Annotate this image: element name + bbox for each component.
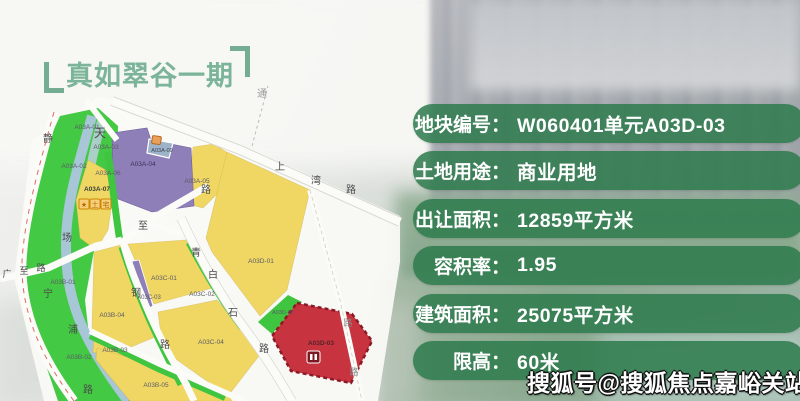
- map-label: 土: [92, 200, 99, 209]
- map-label: 路: [343, 317, 352, 328]
- map-label: 湾: [311, 174, 321, 187]
- map-label: A03C-02: [189, 291, 215, 298]
- map-label: 至: [138, 220, 148, 232]
- map-label: A03D-02: [272, 310, 294, 316]
- map-label: 路: [346, 183, 356, 196]
- page-title-block: 真如翠谷一期: [44, 44, 264, 96]
- map-label: 路: [349, 366, 358, 377]
- map-label: A03D-03: [308, 340, 334, 347]
- map-label: 路: [160, 338, 170, 351]
- map-label: A03C-01: [151, 275, 177, 282]
- facility-badge: ★土宅: [79, 199, 111, 209]
- map-label: A03A-06: [95, 170, 121, 177]
- map-label: 静: [43, 132, 53, 145]
- map-label: A03B-02: [66, 354, 92, 361]
- map-label: A03A-04: [130, 161, 156, 168]
- map-label: 白: [208, 268, 218, 281]
- watermark: 搜狐号@搜狐焦点嘉峪关站: [527, 364, 800, 398]
- page-title: 真如翠谷一期: [66, 54, 234, 93]
- map-label: A03C-04: [198, 339, 224, 346]
- map-label: A03B-03: [102, 347, 128, 354]
- map-label: 至: [19, 266, 28, 276]
- map-label: A03A-02: [61, 163, 87, 170]
- map-label: 宁: [43, 287, 53, 300]
- map-label: A03B-01: [50, 279, 76, 286]
- parcel-marker-icon: [151, 135, 161, 144]
- map-label: 宅: [103, 200, 110, 209]
- map-label: 广: [2, 268, 11, 279]
- map-label: A03B-04: [99, 312, 125, 319]
- map-label: A03B-05: [143, 382, 169, 389]
- map-label: 路: [83, 383, 93, 396]
- land-parcel-map: ★土宅 通静宁路广至路场浦天至钢路路青白石路上湾路路路 A03A-01A03A-…: [0, 84, 410, 401]
- background-sky: [470, 0, 800, 90]
- map-label: A03A-03: [93, 144, 119, 151]
- map-label: A03A-01: [74, 124, 100, 131]
- map-label: 石: [228, 308, 238, 319]
- map-label: 场: [62, 231, 72, 244]
- background-trees: [395, 192, 800, 287]
- page: 真如翠谷一期: [0, 0, 800, 401]
- map-label: 路: [36, 262, 45, 273]
- map-label: ★: [81, 201, 87, 209]
- map-label: A03A-09: [151, 148, 172, 154]
- map-label: 上: [275, 161, 285, 173]
- map-label: 路: [259, 342, 269, 355]
- map-label: A03D-01: [248, 258, 274, 265]
- map-label: 浦: [68, 323, 78, 336]
- building-icon: [307, 351, 320, 363]
- map-label: 青: [191, 246, 201, 259]
- map-label: A03C-03: [137, 295, 161, 301]
- map-label: A03A-05: [184, 178, 210, 185]
- map-label: A03A-07: [84, 186, 110, 193]
- title-bracket-bottom-left-icon: [44, 62, 64, 93]
